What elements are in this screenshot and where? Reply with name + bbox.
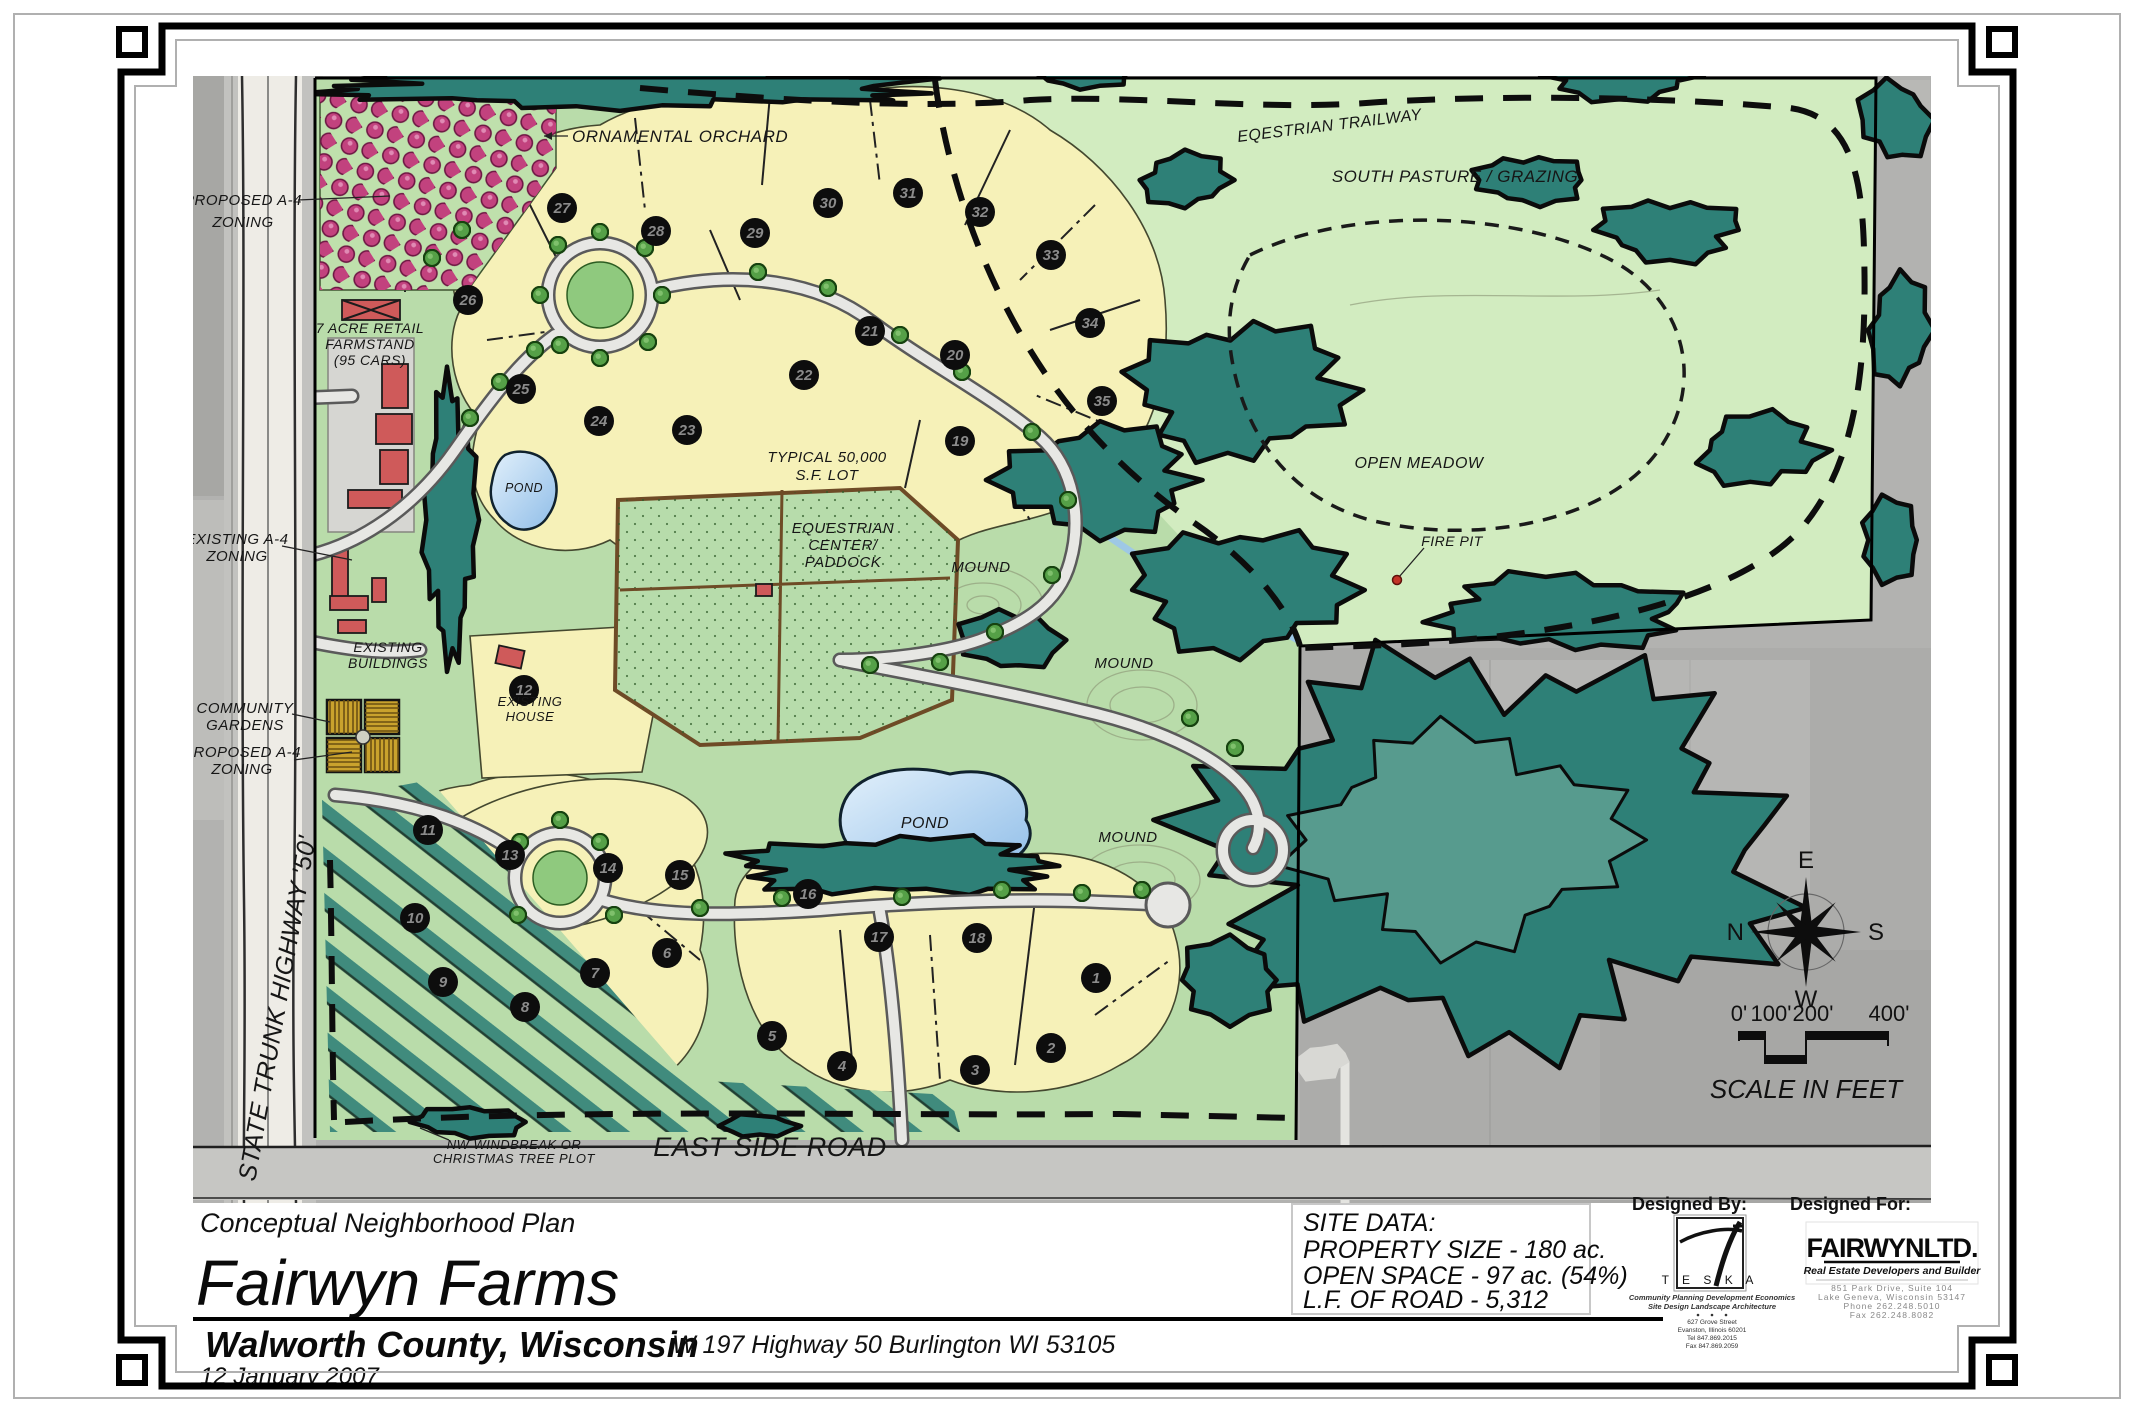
compass-north: N (1727, 919, 1744, 946)
lot-number: 19 (952, 433, 969, 450)
lot-number: 20 (946, 347, 964, 364)
lot-number: 23 (678, 422, 696, 439)
teska-logo-letters: T E S K A (1662, 1273, 1759, 1287)
culdesac-island-south (533, 851, 587, 905)
label-existing-house-2: HOUSE (506, 709, 555, 724)
label-proposed-a4-north: PROPOSED A-4 (184, 192, 302, 209)
teska-fax: Fax 847.869.2059 (1686, 1343, 1739, 1350)
teska-services-2: Site Design Landscape Architecture (1648, 1302, 1776, 1311)
lot-number: 35 (1094, 393, 1111, 410)
teska-phone: Tel 847.869.2015 (1687, 1335, 1737, 1342)
label-south-pasture: SOUTH PASTURE / GRAZING (1332, 167, 1578, 186)
label-equestrian-center-3: PADDOCK (805, 554, 882, 571)
fire-pit-marker (1393, 576, 1402, 585)
label-equestrian-center-2: CENTER/ (808, 537, 879, 554)
label-farmstand-2: FARMSTAND (325, 336, 415, 352)
label-mound-south: MOUND (1098, 829, 1157, 846)
label-typical-lot-1: TYPICAL 50,000 (767, 449, 886, 466)
label-existing-a4-2: ZONING (205, 548, 267, 565)
teska-address-1: 627 Grove Street (1687, 1319, 1737, 1326)
scale-tick-200: 200' (1793, 1001, 1834, 1026)
label-proposed-a4-south-1: PROPOSED A-4 (183, 744, 301, 761)
lot-number: 21 (861, 323, 879, 340)
paddock-gate (756, 584, 772, 596)
lot-number: 13 (502, 847, 519, 864)
teska-services-1: Community Planning Development Economics (1629, 1293, 1795, 1302)
label-ornamental-orchard: ORNAMENTAL ORCHARD (572, 127, 788, 146)
lot-number: 1 (1092, 970, 1100, 987)
culdesac-island-north (567, 262, 633, 328)
project-name: Fairwyn Farms (196, 1247, 619, 1319)
lot-number: 27 (553, 200, 571, 217)
equestrian-paddock (615, 488, 958, 745)
label-proposed-a4-south-2: ZONING (210, 761, 272, 778)
label-proposed-a4-north-2: ZONING (211, 214, 273, 231)
label-typical-lot-2: S.F. LOT (796, 467, 860, 484)
lot-number: 32 (972, 204, 989, 221)
lot-number: 6 (663, 945, 672, 962)
scale-tick-100: 100' (1751, 1001, 1792, 1026)
compass-east: E (1798, 847, 1814, 874)
teska-logo: T E S K A (1662, 1215, 1759, 1291)
label-mound-east: MOUND (1094, 655, 1153, 672)
designed-for-heading: Designed For: (1790, 1194, 1911, 1214)
lot-number: 16 (800, 886, 817, 903)
site-data-property-size: PROPERTY SIZE - 180 ac. (1303, 1236, 1606, 1264)
label-pond-center: POND (901, 815, 949, 832)
plan-sheet: 1 2 3 4 5 6 7 8 9 10 11 12 13 14 15 16 1… (0, 0, 2134, 1412)
lot-number: 10 (407, 910, 424, 927)
label-fire-pit: FIRE PIT (1421, 533, 1484, 549)
label-east-side-road: EAST SIDE ROAD (653, 1132, 887, 1162)
label-existing-house-1: EXISTING (498, 694, 563, 709)
lot-number: 15 (672, 867, 689, 884)
lot-number: 33 (1043, 247, 1060, 264)
lot-number: 3 (971, 1062, 980, 1079)
scale-caption: SCALE IN FEET (1710, 1074, 1904, 1104)
label-nw-windbreak-2: CHRISTMAS TREE PLOT (433, 1151, 595, 1166)
lot-number: 24 (590, 413, 608, 430)
designed-by-block: Designed By: T E S K A Community Plannin… (1629, 1194, 1795, 1350)
fairwyn-company: FAIRWYNLTD. (1807, 1233, 1978, 1263)
map-area: 1 2 3 4 5 6 7 8 9 10 11 12 13 14 15 16 1… (183, 50, 1935, 1204)
label-existing-a4-1: EXISTING A-4 (186, 531, 289, 548)
project-location: Walworth County, Wisconsin (205, 1324, 699, 1365)
label-pond-west: POND (505, 481, 543, 495)
lot-number: 22 (795, 367, 813, 384)
lot-number: 31 (900, 185, 917, 202)
label-community-gardens-2: GARDENS (206, 717, 284, 734)
label-equestrian-center-1: EQUESTRIAN (792, 520, 895, 537)
compass-south: S (1868, 919, 1884, 946)
lot-number: 11 (420, 822, 436, 839)
lot-number: 17 (871, 929, 888, 946)
lot-number: 30 (820, 195, 837, 212)
lot-number: 29 (746, 225, 764, 242)
teska-address-2: Evanston, Illinois 60201 (1678, 1327, 1747, 1334)
label-community-gardens-1: COMMUNITY (197, 700, 294, 717)
lot-number: 28 (647, 223, 665, 240)
label-open-meadow: OPEN MEADOW (1354, 455, 1484, 472)
lot-number: 34 (1082, 315, 1099, 332)
site-data-road-length: L.F. OF ROAD - 5,312 (1303, 1286, 1548, 1314)
lot-number: 5 (768, 1028, 777, 1045)
designed-by-heading: Designed By: (1632, 1194, 1747, 1214)
lot-number: 14 (600, 860, 617, 877)
label-mound-north: MOUND (951, 559, 1010, 576)
label-farmstand-3: (95 CARS) (334, 352, 406, 368)
designed-for-block: Designed For: FAIRWYNLTD. Real Estate De… (1790, 1194, 1981, 1320)
lot-number: 9 (439, 974, 448, 991)
label-farmstand-1: 7 ACRE RETAIL (316, 320, 424, 336)
project-address: W 197 Highway 50 Burlington WI 53105 (672, 1331, 1115, 1359)
lot-number: 4 (837, 1058, 847, 1075)
scale-tick-0: 0' (1731, 1001, 1747, 1026)
culdesac-bulb-east (1146, 883, 1190, 927)
site-data-heading: SITE DATA: (1303, 1209, 1435, 1237)
lot-number: 18 (969, 930, 986, 947)
label-existing-buildings-1: EXISTING (353, 639, 422, 655)
fairwyn-fax: Fax 262.248.8082 (1850, 1310, 1935, 1320)
label-nw-windbreak-1: NW WINDBREAK OR (447, 1137, 582, 1152)
plan-type: Conceptual Neighborhood Plan (200, 1208, 575, 1238)
lot-number: 26 (459, 292, 477, 309)
site-plan-canvas: 1 2 3 4 5 6 7 8 9 10 11 12 13 14 15 16 1… (0, 0, 2134, 1412)
site-data-box: SITE DATA: PROPERTY SIZE - 180 ac. OPEN … (1292, 1204, 1628, 1314)
scale-tick-400: 400' (1869, 1001, 1910, 1026)
lot-number: 2 (1046, 1040, 1056, 1057)
lot-number: 7 (591, 965, 600, 982)
label-existing-buildings-2: BUILDINGS (348, 655, 428, 671)
lot-number: 25 (512, 381, 530, 398)
fairwyn-tagline: Real Estate Developers and Builder (1804, 1265, 1982, 1277)
lot-number: 8 (521, 999, 530, 1016)
